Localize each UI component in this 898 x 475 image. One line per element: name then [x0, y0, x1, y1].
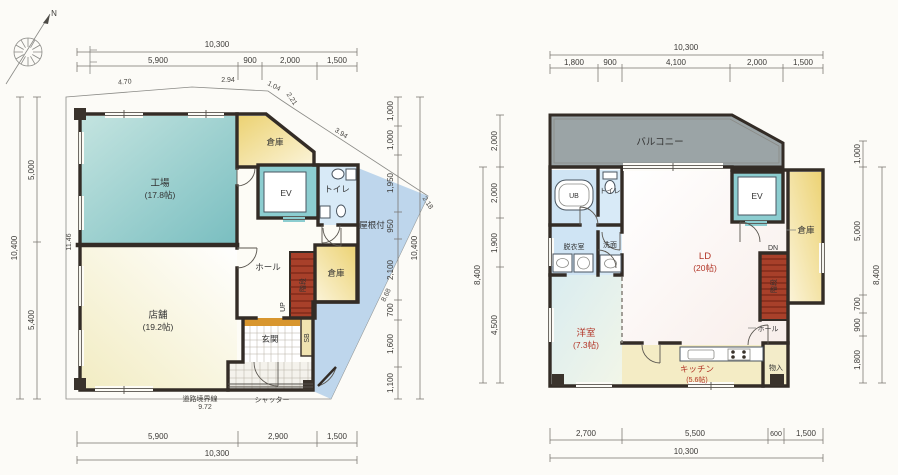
dim-seg: 2,000 — [747, 58, 768, 67]
dim-seg: 1,500 — [796, 429, 817, 438]
storage-label-2f: 倉庫 — [797, 225, 815, 235]
dim-seg: 2,100 — [386, 259, 395, 280]
balcony-label: バルコニー — [636, 137, 683, 148]
dim-seg: 900 — [603, 58, 617, 67]
entrance-label: 玄関 — [261, 334, 278, 344]
level-marker — [90, 46, 97, 74]
north-arrowhead — [43, 14, 50, 24]
dim-seg: 1,500 — [327, 56, 348, 65]
north-label: N — [51, 9, 57, 18]
dim-seg: 1,900 — [490, 232, 499, 253]
boundary-seg-1: 4.70 — [118, 78, 132, 86]
hall-label-2f: ホール — [758, 325, 779, 333]
dim-total-top-2f: 10,300 — [674, 43, 699, 52]
roofed-label: 屋根付 — [359, 220, 385, 230]
ld-size: (20帖) — [693, 263, 717, 273]
dim-seg: 1,000 — [386, 129, 395, 150]
kitchen-size: (5.6帖) — [686, 375, 707, 384]
toilet-bowl-1f — [332, 169, 344, 179]
storage-mid-label: 倉庫 — [327, 268, 345, 278]
shop-label: 店舗 — [148, 309, 168, 321]
stairs-label-1f: 階段 — [298, 278, 307, 292]
ub-label: UB — [569, 193, 579, 200]
dim-seg: 900 — [243, 56, 257, 65]
dim-seg: 2,700 — [576, 429, 597, 438]
floor1-plan: 工場 (17.8帖) 店舗 (19.2帖) 倉庫 EV トイレ ホール 倉庫 玄… — [10, 40, 434, 464]
western-size: (7.3帖) — [573, 340, 599, 350]
kitchen-label: キッチン — [680, 364, 714, 374]
dim-seg: 4,100 — [666, 58, 687, 67]
corner-post — [770, 374, 784, 386]
dim-seg: 1,800 — [853, 349, 862, 370]
dim-total-bottom-1f: 10,300 — [205, 449, 230, 458]
corner-post — [303, 380, 313, 390]
dim-seg: 5,400 — [27, 309, 36, 330]
floorplan-drawing: N — [0, 0, 898, 475]
factory-size: (17.8帖) — [145, 190, 176, 200]
shop-size: (19.2帖) — [143, 322, 174, 332]
dim-seg: 700 — [386, 303, 395, 317]
dim-seg: 5,900 — [148, 432, 169, 441]
western-label: 洋室 — [576, 327, 595, 339]
dim-line — [550, 51, 823, 59]
dim-seg: 2,000 — [280, 56, 301, 65]
dim-seg: 1,100 — [386, 372, 395, 393]
dim-total-left-1f: 10,400 — [10, 235, 19, 260]
dim-seg: 700 — [853, 297, 862, 311]
toilet-tank-1f — [346, 169, 356, 180]
washstand-1f — [320, 206, 330, 218]
corner-post — [552, 374, 564, 386]
dn-label: DN — [768, 245, 778, 252]
toilet-label-2f: トイレ — [600, 188, 621, 195]
dim-seg: 1,950 — [386, 172, 395, 193]
factory-label: 工場 — [150, 177, 170, 189]
dim-line — [77, 431, 357, 447]
closet-label: 物入 — [769, 363, 783, 372]
dim-line — [77, 48, 357, 56]
dim-right-top-2f: 1,000 — [853, 143, 862, 164]
boundary-seg-5: 3.94 — [333, 127, 348, 140]
dim-seg: 950 — [386, 219, 395, 233]
dim-balcony-depth: 2,000 — [490, 130, 499, 151]
wall-length-label: 11.46 — [66, 233, 73, 250]
dim-seg: 4,500 — [490, 314, 499, 335]
dim-seg: 600 — [770, 431, 782, 438]
corner-post — [74, 108, 86, 120]
shoebox-label: SB — [304, 333, 311, 343]
dim-seg: 1,600 — [386, 333, 395, 354]
boundary-seg-2: 2.94 — [221, 77, 235, 84]
dim-seg: 1,000 — [386, 100, 395, 121]
dim-seg: 1,500 — [327, 432, 348, 441]
stairs-label-2f: 階段 — [769, 279, 778, 293]
dim-line — [550, 64, 823, 82]
dim-total-bottom-2f: 10,300 — [674, 447, 699, 456]
dressing-label: 脱衣室 — [564, 242, 585, 251]
dim-seg: 5,000 — [853, 220, 862, 241]
up-label: UP — [280, 302, 287, 312]
dim-seg: 5,000 — [27, 159, 36, 180]
boundary-seg-4: 2.21 — [285, 92, 298, 107]
dim-total-left-2f: 8,400 — [473, 264, 482, 285]
dim-seg: 900 — [853, 318, 862, 332]
dim-line — [859, 141, 867, 383]
toilet-tank-2f — [603, 172, 617, 179]
entrance-floor — [243, 326, 300, 362]
storage-top-label: 倉庫 — [266, 137, 284, 147]
floorplan-sheet: N — [0, 0, 898, 475]
washstand-2f — [600, 255, 621, 272]
dim-line — [77, 62, 357, 80]
dim-total-right-2f: 8,400 — [872, 264, 881, 285]
floor2-plan: バルコニー LD (20帖) 洋室 (7.3帖) キッチン (5.6帖) UB … — [473, 43, 886, 462]
dim-seg: 1,500 — [793, 58, 814, 67]
ev-label-1f: EV — [280, 188, 292, 198]
dim-seg: 1,800 — [564, 58, 585, 67]
dim-line — [33, 97, 41, 399]
ev-label-2f: EV — [751, 191, 763, 201]
ld-label: LD — [699, 251, 711, 262]
washroom-label: 洗面 — [603, 240, 617, 249]
corner-post — [74, 378, 86, 390]
shutter-label: シャッター — [255, 395, 290, 404]
dim-seg: 5,500 — [685, 429, 706, 438]
hall-label-1f: ホール — [255, 262, 281, 272]
dim-seg: 2,000 — [490, 182, 499, 203]
storage-room-2f — [788, 172, 823, 303]
road-boundary-label: 道路境界線 — [183, 394, 218, 403]
compass-rose: N — [6, 9, 97, 84]
dim-total-top-1f: 10,300 — [205, 40, 230, 49]
dim-total-right-1f: 10,400 — [410, 235, 419, 260]
dim-seg: 5,900 — [148, 56, 169, 65]
toilet-label-1f: トイレ — [324, 184, 350, 194]
dim-seg: 2,900 — [268, 432, 289, 441]
urinal-1f — [337, 205, 346, 217]
vanity-cabinet — [553, 254, 572, 272]
road-boundary-value: 9.72 — [198, 404, 212, 411]
